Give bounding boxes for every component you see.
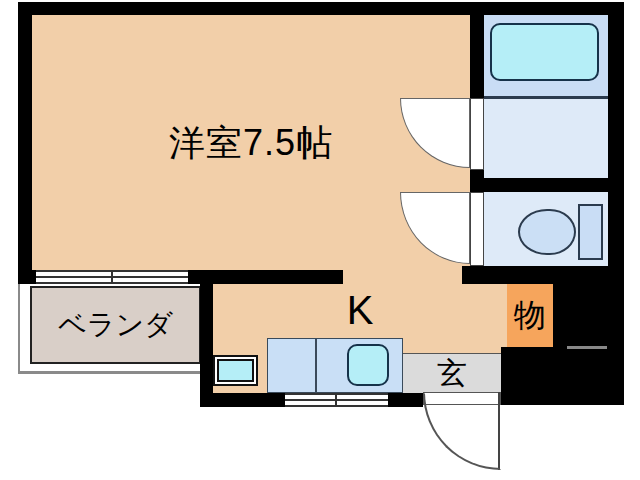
wall-bottom-right-block <box>501 347 624 405</box>
toilet-bowl-icon <box>518 209 576 255</box>
washroom-door-leaf <box>470 98 484 170</box>
window-center-tick <box>111 272 113 282</box>
sliding-window-main <box>36 270 188 284</box>
room-western: 洋室7.5帖 <box>32 15 470 271</box>
counter-divider-line <box>315 339 317 392</box>
room-washroom <box>484 99 608 178</box>
entrance-label: 玄 <box>437 353 467 394</box>
veranda-label: ベランダ <box>58 306 173 344</box>
wall-interior-upper <box>470 15 484 98</box>
meter-box-line <box>567 346 607 349</box>
room-veranda: ベランダ <box>30 286 201 364</box>
floorplan-canvas: 洋室7.5帖 物 玄 ベランダ <box>0 0 640 480</box>
room-western-label: 洋室7.5帖 <box>169 119 333 168</box>
veranda-rail-bottom <box>18 371 200 374</box>
storage-label: 物 <box>514 294 546 338</box>
room-storage: 物 <box>507 284 553 347</box>
wall-interior-middle <box>470 170 484 192</box>
washing-machine-pan-inner <box>217 359 254 382</box>
wall-kitchen-left <box>200 270 213 407</box>
kitchen-label: K <box>213 288 507 333</box>
window-center-tick <box>335 395 337 405</box>
wall-top <box>18 2 624 15</box>
toilet-tank-icon <box>578 204 603 260</box>
wall-washroom-toilet <box>484 178 624 192</box>
wall-kitchen-top <box>213 270 343 284</box>
toilet-door-leaf <box>470 192 484 266</box>
wall-main-bottom-left <box>18 270 36 284</box>
wall-kitchen-bottom-right <box>388 393 423 407</box>
washing-machine-pan-icon <box>213 355 258 386</box>
sliding-window-kitchen <box>285 393 388 407</box>
entrance-door-swing-arc <box>423 392 501 470</box>
veranda-rail-left <box>18 284 20 374</box>
wall-kitchen-bottom-left <box>200 393 285 407</box>
room-entrance: 玄 <box>403 353 501 393</box>
kitchen-sink-icon <box>347 344 389 386</box>
bathtub-icon <box>490 23 599 81</box>
wall-left <box>18 2 32 284</box>
